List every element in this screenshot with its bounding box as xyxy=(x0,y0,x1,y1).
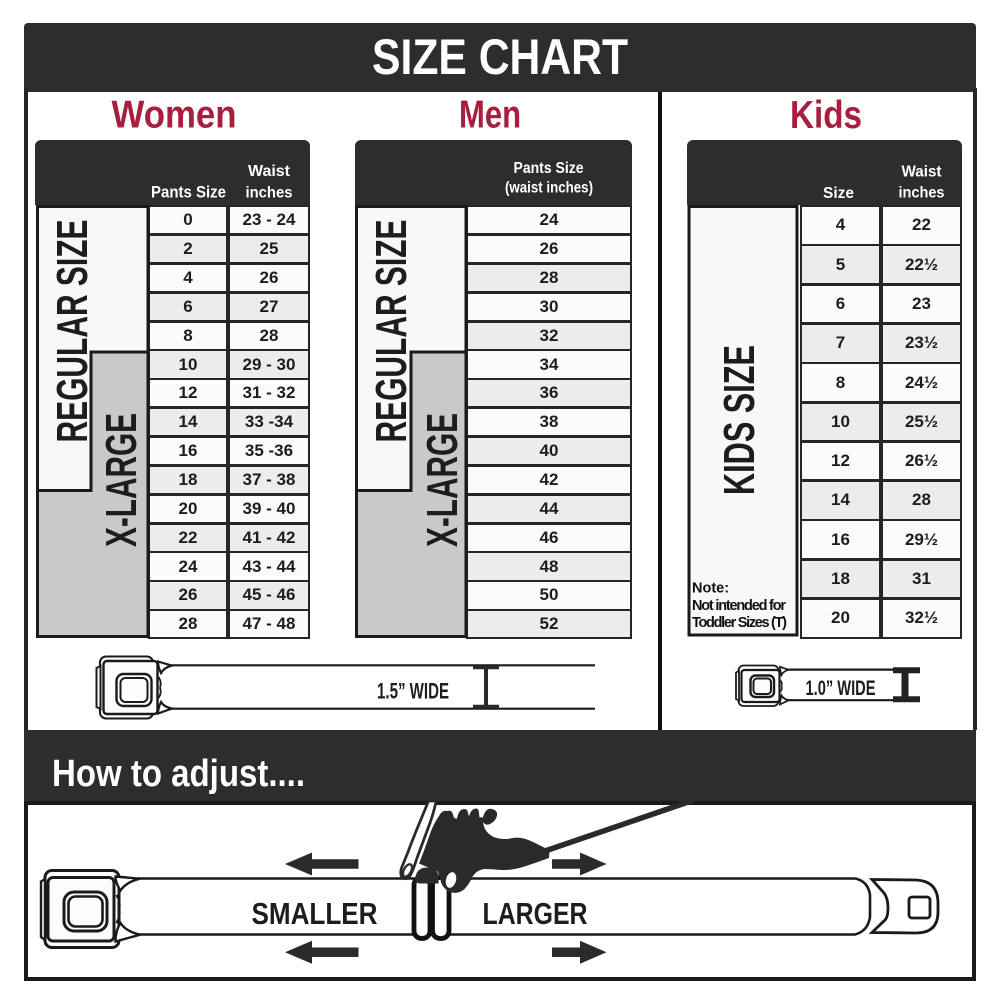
svg-text:inches: inches xyxy=(246,185,293,202)
svg-text:(waist inches): (waist inches) xyxy=(505,180,593,197)
svg-text:Size: Size xyxy=(823,185,854,202)
svg-text:Toddler Sizes (T): Toddler Sizes (T) xyxy=(692,615,787,631)
svg-text:Men: Men xyxy=(459,94,521,137)
svg-text:How to adjust....: How to adjust.... xyxy=(52,753,305,795)
svg-text:KIDS SIZE: KIDS SIZE xyxy=(715,345,764,495)
svg-text:X-LARGE: X-LARGE xyxy=(97,413,146,547)
svg-text:Women: Women xyxy=(112,94,237,137)
svg-text:REGULAR SIZE: REGULAR SIZE xyxy=(48,220,97,443)
svg-text:Waist: Waist xyxy=(902,164,943,181)
svg-text:Waist: Waist xyxy=(248,163,291,180)
svg-text:Pants Size: Pants Size xyxy=(514,160,584,177)
svg-text:X-LARGE: X-LARGE xyxy=(418,413,467,547)
svg-text:Kids: Kids xyxy=(790,94,862,137)
svg-text:Pants Size: Pants Size xyxy=(151,184,226,202)
svg-text:LARGER: LARGER xyxy=(483,896,588,931)
svg-text:Note:: Note: xyxy=(692,581,729,597)
svg-text:SIZE CHART: SIZE CHART xyxy=(372,29,628,85)
svg-text:1.5” WIDE: 1.5” WIDE xyxy=(377,679,449,704)
svg-text:1.0” WIDE: 1.0” WIDE xyxy=(806,677,876,700)
svg-text:inches: inches xyxy=(899,185,945,202)
svg-text:SMALLER: SMALLER xyxy=(252,896,378,931)
svg-text:Not intended for: Not intended for xyxy=(692,598,786,614)
svg-text:REGULAR SIZE: REGULAR SIZE xyxy=(367,220,416,443)
